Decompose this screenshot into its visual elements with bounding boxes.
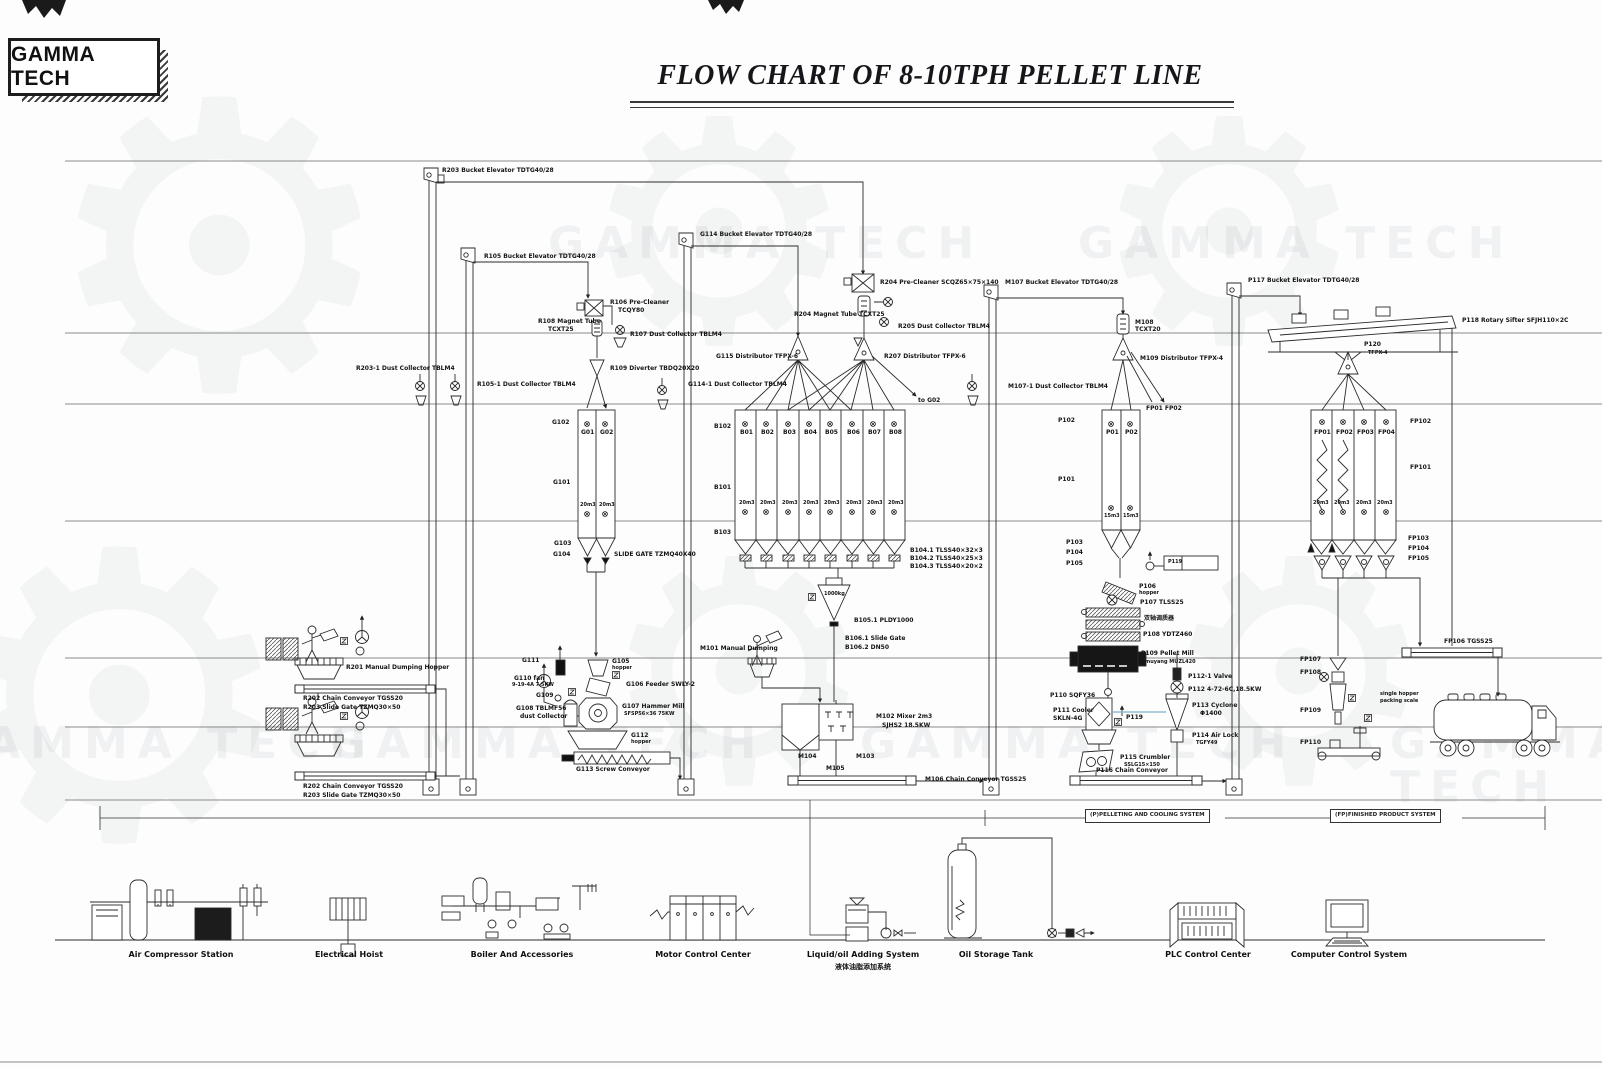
label-p117-elevator: P117 Bucket Elevator TDTG40/28 (1248, 278, 1359, 285)
bagging-station (1318, 658, 1380, 760)
label-m107-elevator: M107 Bucket Elevator TDTG40/28 (1005, 280, 1118, 287)
p120-distributor (1322, 352, 1386, 410)
label-r109-diverter: R109 Diverter TBDQ20X20 (610, 366, 699, 373)
label-m104: M104 (798, 754, 817, 761)
label-m108-model: TCXT20 (1135, 327, 1161, 334)
label-b104-3: B104.3 TLSS40×20×2 (910, 564, 983, 571)
label-g102: G102 (552, 420, 569, 427)
label-to-g02: to G02 (918, 398, 940, 405)
section-pelleting: (P)PELLETING AND COOLING SYSTEM (1085, 809, 1210, 823)
company-logo: GAMMA TECH (8, 38, 160, 96)
label-g105-sub: hopper (612, 666, 632, 672)
label-air-compressor: Air Compressor Station (129, 950, 234, 959)
label-g107: G107 Hammer Mill (622, 704, 684, 711)
label-capacity: 20m3 (760, 501, 776, 507)
gear-fragment-top-center (708, 0, 744, 14)
label-m106: M106 Chain Conveyor TGSS25 (925, 777, 1026, 784)
label-plc: PLC Control Center (1165, 950, 1251, 959)
label-capacity: 20m3 (782, 501, 798, 507)
label-p102: P102 (1058, 418, 1075, 425)
label-b106-1: B106.1 Slide Gate (845, 636, 905, 643)
label-mcc: Motor Control Center (655, 950, 751, 959)
label-bin-b07: B07 (868, 430, 881, 437)
label-p115: P115 Crumbler (1120, 755, 1170, 762)
r109-diverter (587, 360, 606, 408)
label-bin-fp02: FP02 (1336, 430, 1353, 437)
section-dimension-line (100, 806, 1545, 830)
label-p112: P112 4-72-6C,18.5KW (1188, 687, 1261, 694)
label-g106: G106 Feeder SWLY-2 (626, 682, 695, 689)
label-bin-b01: B01 (740, 430, 753, 437)
label-p104: P104 (1066, 550, 1083, 557)
label-capacity: 20m3 (739, 501, 755, 507)
label-g104: G104 (553, 552, 570, 559)
label-g115-distributor: G115 Distributor TFPX-6 (716, 354, 798, 361)
label-b104-1: B104.1 TLSS40×32×3 (910, 548, 983, 555)
label-bin-b02: B02 (761, 430, 774, 437)
label-r207-distributor: R207 Distributor TFPX-6 (884, 354, 966, 361)
fp-silos (1308, 410, 1420, 656)
label-fp104: FP104 (1408, 546, 1429, 553)
label-r108-magnet: R108 Magnet Tube (538, 319, 601, 326)
label-b101: B101 (714, 485, 731, 492)
g-silos (578, 410, 615, 656)
label-p109: P109 Pellet Mill (1141, 651, 1194, 658)
label-r202-upper: R202 Chain Conveyor TGSS20 (303, 696, 403, 703)
label-computer: Computer Control System (1291, 950, 1407, 959)
label-p110: P110 SQFY36 (1050, 693, 1095, 700)
label-capacity: 20m3 (1356, 501, 1372, 507)
label-g103: G103 (554, 541, 571, 548)
label-g107-model: SFSP56×36 75KW (624, 712, 674, 718)
label-bin-b08: B08 (889, 430, 902, 437)
label-fp109: FP109 (1300, 708, 1321, 715)
label-m105: M105 (826, 766, 845, 773)
label-b105-capacity: 1000kg (824, 592, 845, 598)
label-m102: M102 Mixer 2m3 (876, 714, 932, 721)
p106-p107-feeder (1102, 582, 1136, 605)
label-p106-sub: hopper (1139, 591, 1159, 597)
g107-hammer-mill (577, 698, 617, 729)
label-b106-2: B106.2 DN50 (845, 645, 889, 652)
label-p113: P113 Cyclone (1192, 703, 1237, 710)
m107-bucket-elevator (983, 285, 999, 795)
label-fp105: FP105 (1408, 556, 1429, 563)
label-bin-fp03: FP03 (1357, 430, 1374, 437)
label-boiler: Boiler And Accessories (471, 950, 574, 959)
label-m101: M101 Manual Dumping (700, 646, 778, 653)
label-fp108: FP108 (1300, 670, 1321, 677)
process-flow-drawing (0, 0, 1602, 1068)
fp106-chain-conveyor (1402, 648, 1502, 696)
label-capacity: 20m3 (888, 501, 904, 507)
label-b103: B103 (714, 530, 731, 537)
label-g113: G113 Screw Conveyor (576, 767, 650, 774)
label-g109: G109 (536, 693, 553, 700)
label-bin-fp01: FP01 (1314, 430, 1331, 437)
label-r106-model: TCQY80 (618, 308, 644, 315)
label-p119-box: P119 (1168, 560, 1182, 566)
label-g111: G111 (522, 658, 539, 665)
label-fp103: FP103 (1408, 536, 1429, 543)
label-capacity: 15m3 (1104, 514, 1120, 520)
label-p108: P108 YDTZ460 (1143, 632, 1192, 639)
label-capacity: 15m3 (1123, 514, 1139, 520)
motor-control-center (650, 896, 754, 940)
label-g114-elevator: G114 Bucket Elevator TDTG40/28 (700, 232, 812, 239)
p117-bucket-elevator (1226, 283, 1242, 795)
label-p109-model: muyang MUZL420 (1145, 660, 1196, 666)
label-b105-1: B105.1 PLDY1000 (854, 618, 913, 625)
label-g114-1-dust: G114-1 Dust Collector TBLM4 (688, 382, 787, 389)
label-p103: P103 (1066, 540, 1083, 547)
label-p113-model: Φ1400 (1200, 711, 1222, 718)
label-g112-sub: hopper (631, 740, 651, 746)
label-p107: P107 TLSS25 (1140, 600, 1184, 607)
label-fp107: FP107 (1300, 657, 1321, 664)
label-r107-dust: R107 Dust Collector TBLM4 (630, 332, 722, 339)
label-bin-b04: B04 (804, 430, 817, 437)
m101-manual-dumping (748, 631, 820, 702)
label-r203-gate-upper: R203 Slide Gate TZMQ30×50 (303, 705, 400, 712)
label-capacity: 20m3 (824, 501, 840, 507)
label-r108-model: TCXT25 (548, 327, 574, 334)
label-r105-elevator: R105 Bucket Elevator TDTG40/28 (484, 254, 596, 261)
boiler-and-accessories (442, 878, 596, 939)
label-electrical-hoist: Electrical Hoist (315, 950, 383, 959)
label-fp110: FP110 (1300, 740, 1321, 747)
title-underline (630, 101, 1234, 108)
label-m109-distributor: M109 Distributor TFPX-4 (1140, 356, 1223, 363)
label-capacity: 20m3 (599, 503, 615, 509)
liquid-oil-adding-system (810, 800, 916, 941)
label-bin-b05: B05 (825, 430, 838, 437)
computer-control-system (1326, 900, 1368, 946)
label-r203-gate-lower: R203 Slide Gate TZMQ30×50 (303, 793, 400, 800)
label-conditioner-cn: 双轴调质器 (1144, 616, 1174, 623)
label-g108: G108 TBLMF56 (516, 706, 566, 713)
label-p111: P111 Cooler (1053, 708, 1094, 715)
label-p114: P114 Air Lock (1192, 733, 1238, 740)
label-bin-b03: B03 (783, 430, 796, 437)
flow-chart-sheet: ⚙ ⚙ ⚙ ⚙ ⚙ ⚙ GAMMA TECH GAMMA TECH GAMMA … (0, 0, 1602, 1068)
label-m103: M103 (856, 754, 875, 761)
label-r202-lower: R202 Chain Conveyor TGSS20 (303, 784, 403, 791)
label-fp01-fp02-route: FP01 FP02 (1146, 406, 1182, 413)
label-p101: P101 (1058, 477, 1075, 484)
label-p105: P105 (1066, 561, 1083, 568)
label-bin-b06: B06 (847, 430, 860, 437)
electrical-hoist (330, 898, 366, 956)
label-r105-1-dust: R105-1 Dust Collector TBLM4 (477, 382, 576, 389)
label-p119: P119 (1126, 715, 1143, 722)
label-liquid-adding-cn: 液体油脂添加系统 (835, 962, 891, 972)
label-fp102: FP102 (1410, 419, 1431, 426)
label-r106-precleaner: R106 Pre-Cleaner (610, 300, 669, 307)
label-capacity: 20m3 (846, 501, 862, 507)
label-bin-g02: G02 (600, 430, 613, 437)
label-b102: B102 (714, 424, 731, 431)
label-capacity: 20m3 (867, 501, 883, 507)
label-m107-1-dust: M107-1 Dust Collector TBLM4 (1008, 384, 1108, 391)
label-capacity: 20m3 (1334, 501, 1350, 507)
r106-precleaner (577, 300, 603, 316)
label-p114-model: TGFY49 (1196, 741, 1218, 747)
gear-fragment-top-left (22, 0, 66, 18)
air-compressor-station (90, 880, 268, 940)
label-b104-2: B104.2 TLSS40×25×3 (910, 556, 983, 563)
label-capacity: 20m3 (580, 503, 596, 509)
p109-pellet-mill (1070, 646, 1146, 688)
label-g110-model: 9-19-4A 7.5KW (512, 683, 554, 689)
label-fp101: FP101 (1410, 465, 1431, 472)
r203-bucket-elevator (423, 168, 444, 795)
oil-storage-tank (944, 838, 1094, 938)
label-bin-p01: P01 (1106, 430, 1119, 437)
label-liquid-adding: Liquid/oil Adding System (807, 950, 919, 959)
label-pack-note-2: packing scale (1380, 699, 1418, 705)
label-g101: G101 (553, 480, 570, 487)
label-bin-fp04: FP04 (1378, 430, 1395, 437)
label-m102-model: SJHS2 18.5KW (882, 723, 930, 730)
label-p120: P120 (1364, 342, 1381, 349)
label-pack-note-1: single hopper (1380, 692, 1419, 698)
label-p112-1: P112-1 Valve (1188, 674, 1232, 681)
label-p116: P116 Chain Conveyor (1096, 768, 1168, 775)
r204-precleaner (844, 274, 874, 292)
section-finished-product: (FP)FINISHED PRODUCT SYSTEM (1330, 809, 1441, 823)
label-g108-sub: dust Collector (520, 714, 567, 721)
label-p111-model: SKLN-4G (1053, 716, 1082, 723)
label-oil-storage: Oil Storage Tank (959, 950, 1033, 959)
p116-chain-conveyor (1070, 776, 1226, 785)
label-capacity: 20m3 (1377, 501, 1393, 507)
label-bin-p02: P02 (1125, 430, 1138, 437)
label-r201: R201 Manual Dumping Hopper (346, 665, 449, 672)
bulk-truck (1430, 694, 1560, 756)
label-bin-g01: G01 (581, 430, 594, 437)
label-p118-sifter: P118 Rotary Sifter SFJH110×2C (1462, 318, 1568, 325)
label-slide-gate: SLIDE GATE TZMQ40X40 (614, 552, 696, 559)
label-r203-1-dust: R203-1 Dust Collector TBLM4 (356, 366, 455, 373)
label-r203-elevator: R203 Bucket Elevator TDTG40/28 (442, 168, 554, 175)
label-fp106: FP106 TGSS25 (1444, 639, 1493, 646)
label-r205-dust: R205 Dust Collector TBLM4 (898, 324, 990, 331)
label-capacity: 20m3 (803, 501, 819, 507)
g115-distributor (745, 336, 851, 410)
label-r204-precleaner: R204 Pre-Cleaner SCQZ65×75×140 (880, 280, 999, 287)
label-p120-model: TFPX-4 (1368, 351, 1388, 357)
p108-conditioner (1082, 608, 1145, 641)
label-r204-magnet: R204 Magnet Tube TCXT25 (794, 312, 885, 319)
label-capacity: 20m3 (1313, 501, 1329, 507)
page-title: FLOW CHART OF 8-10TPH PELLET LINE (622, 60, 1238, 92)
